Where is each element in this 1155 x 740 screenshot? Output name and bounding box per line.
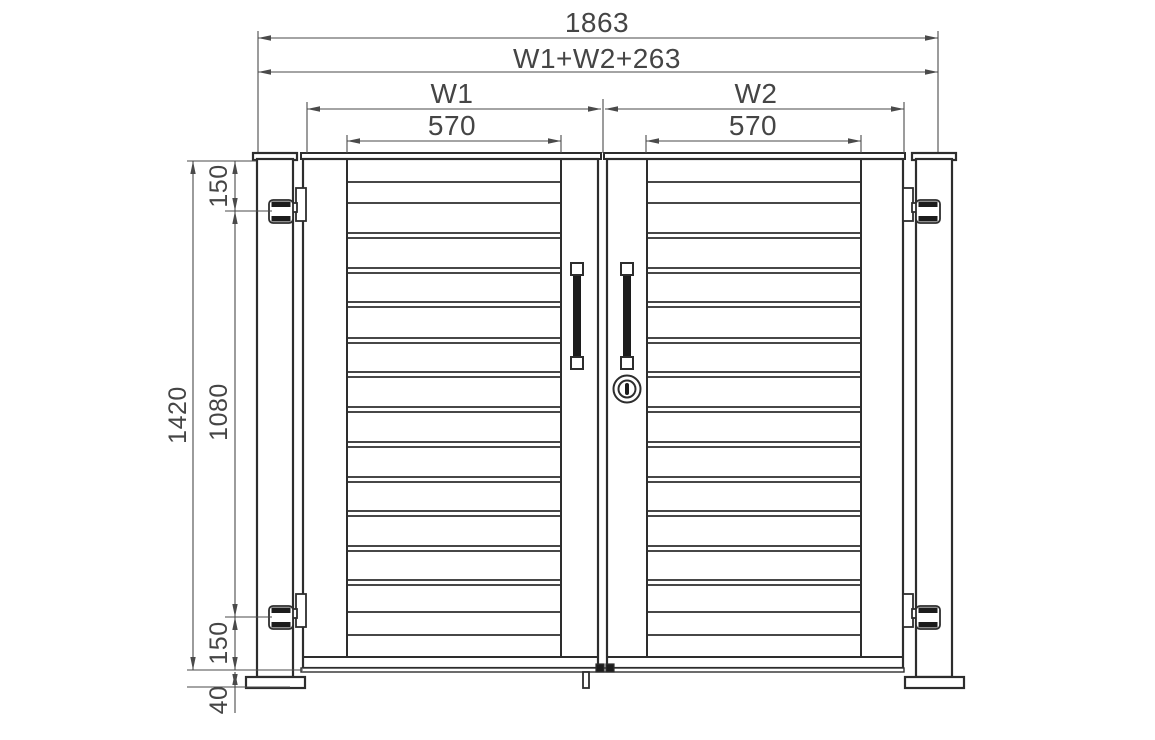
handle-bar bbox=[623, 274, 631, 358]
hinge-barrel-cap bbox=[919, 622, 938, 628]
dim-arrowhead bbox=[925, 35, 938, 40]
drop-rod bbox=[583, 672, 589, 688]
dim-label-hinge-top-offset: 150 bbox=[205, 164, 233, 207]
dim-label-hinge-spacing: 1080 bbox=[205, 383, 233, 441]
dim-arrowhead bbox=[347, 138, 360, 143]
post-body bbox=[257, 159, 293, 677]
hinge-barrel-cap bbox=[272, 622, 291, 628]
gate-leaf-left bbox=[301, 153, 601, 668]
hinge-barrel-cap bbox=[272, 216, 291, 222]
hinge-barrel-cap bbox=[919, 608, 938, 614]
dim-arrowhead bbox=[232, 161, 237, 174]
dim-arrowhead bbox=[190, 161, 195, 174]
leaf-frame bbox=[607, 159, 903, 668]
dim-label-overall-height: 1420 bbox=[164, 386, 192, 444]
handle-mount bbox=[621, 263, 633, 275]
hinge-barrel-cap bbox=[919, 202, 938, 208]
dim-label-ground-clearance: 40 bbox=[205, 686, 233, 715]
dim-arrowhead bbox=[232, 674, 237, 687]
dim-arrowhead bbox=[588, 106, 601, 111]
dim-arrowhead bbox=[232, 604, 237, 617]
handle-mount bbox=[621, 357, 633, 369]
dim-arrowhead bbox=[190, 657, 195, 670]
latch-block bbox=[606, 664, 614, 672]
dim-arrowhead bbox=[232, 211, 237, 224]
post-base-plate bbox=[905, 677, 964, 688]
dim-arrowhead bbox=[232, 617, 237, 630]
dim-label-formula-width: W1+W2+263 bbox=[513, 43, 681, 74]
dim-label-leaf2-width: W2 bbox=[735, 78, 778, 109]
dim-label-infill1-width: 570 bbox=[428, 110, 476, 141]
dim-arrowhead bbox=[548, 138, 561, 143]
gate-leaf-right bbox=[604, 153, 905, 668]
hinge-barrel-cap bbox=[272, 202, 291, 208]
dim-arrowhead bbox=[646, 138, 659, 143]
post-body bbox=[916, 159, 952, 677]
dim-arrowhead bbox=[891, 106, 904, 111]
dim-arrowhead bbox=[605, 106, 618, 111]
dim-label-infill2-width: 570 bbox=[729, 110, 777, 141]
lock bbox=[614, 376, 641, 403]
hinge-barrel-cap bbox=[919, 216, 938, 222]
dim-label-overall-width: 1863 bbox=[565, 7, 629, 38]
dim-arrowhead bbox=[307, 106, 320, 111]
dim-label-leaf1-width: W1 bbox=[431, 78, 474, 109]
dim-arrowhead bbox=[258, 35, 271, 40]
handle-mount bbox=[571, 357, 583, 369]
gate-elevation-drawing: 1863 W1+W2+263 W1 W2 570 570 1420 150 10… bbox=[0, 0, 1155, 740]
handle-mount bbox=[571, 263, 583, 275]
handle-bar bbox=[573, 274, 581, 358]
technical-drawing-page: 1863 W1+W2+263 W1 W2 570 570 1420 150 10… bbox=[0, 0, 1155, 740]
dim-arrowhead bbox=[232, 657, 237, 670]
dim-arrowhead bbox=[925, 69, 938, 74]
dim-label-hinge-bottom-offset: 150 bbox=[205, 621, 233, 664]
gate-structure bbox=[246, 153, 964, 688]
dim-arrowhead bbox=[258, 69, 271, 74]
post-base-plate bbox=[246, 677, 305, 688]
lock-keyhole-slot bbox=[625, 383, 629, 395]
dim-arrowhead bbox=[232, 198, 237, 211]
dim-arrowhead bbox=[848, 138, 861, 143]
hinge-barrel-cap bbox=[272, 608, 291, 614]
latch-block bbox=[596, 664, 604, 672]
